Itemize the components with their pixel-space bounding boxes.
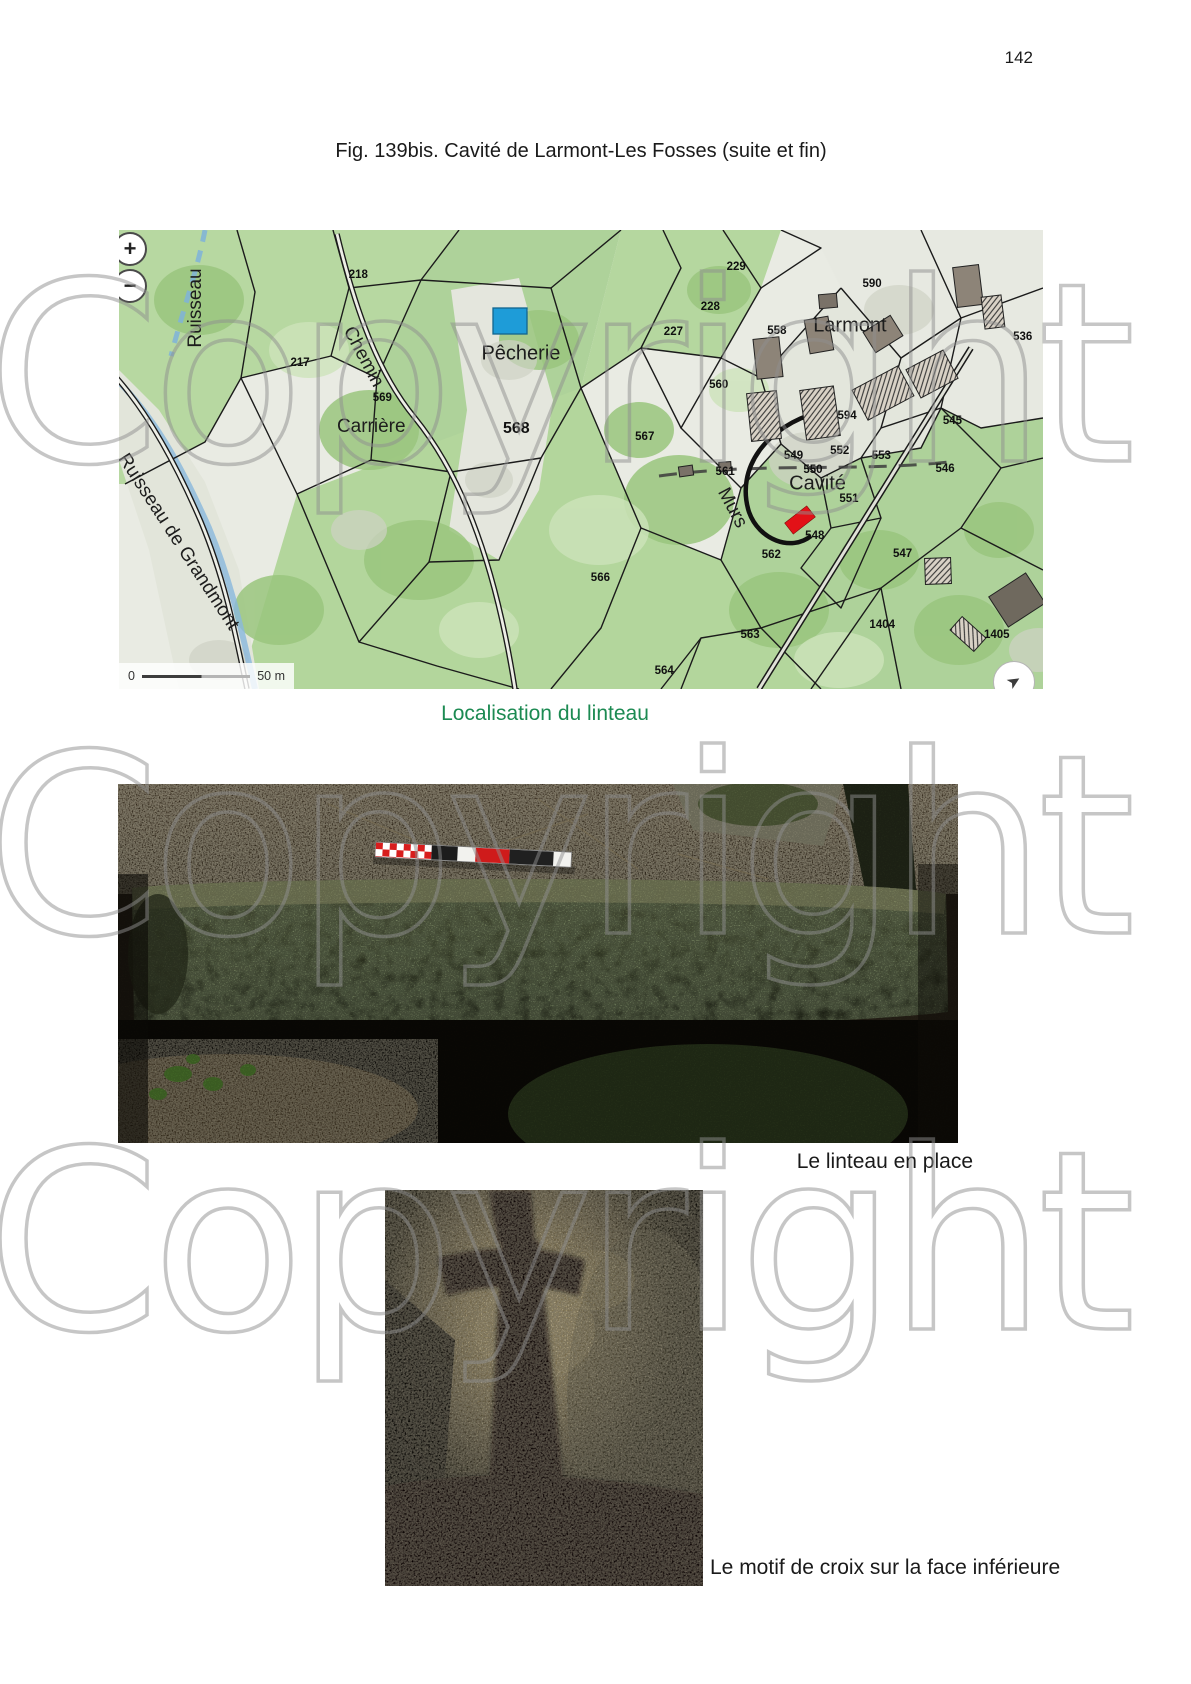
document-page: 142 Fig. 139bis. Cavité de Larmont-Les F… [0,0,1191,1684]
cross-photo [385,1190,703,1586]
figure-title: Fig. 139bis. Cavité de Larmont-Les Fosse… [119,140,1043,163]
map-graphics [119,230,1043,689]
lintel-photo [118,784,958,1143]
map-zoom-control: + − [119,232,147,303]
page-number: 142 [1005,48,1033,68]
scale-start-label: 0 [128,669,135,683]
scale-end-label: 50 m [257,669,285,683]
zoom-in-button[interactable]: + [119,232,147,266]
lintel-photo-caption: Le linteau en place [119,1150,973,1174]
cross-photo-caption: Le motif de croix sur la face inférieure [710,1556,1060,1580]
pecherie-marker [493,308,527,334]
map-caption: Localisation du linteau [119,702,971,726]
cadastral-map[interactable]: RuisseauRuisseau de GrandmontCheminCarri… [119,230,1043,689]
map-scale-bar: 0 50 m [119,663,294,689]
scale-line [142,675,250,678]
zoom-out-button[interactable]: − [119,269,147,303]
location-arrow-icon: ➤ [1003,670,1026,689]
